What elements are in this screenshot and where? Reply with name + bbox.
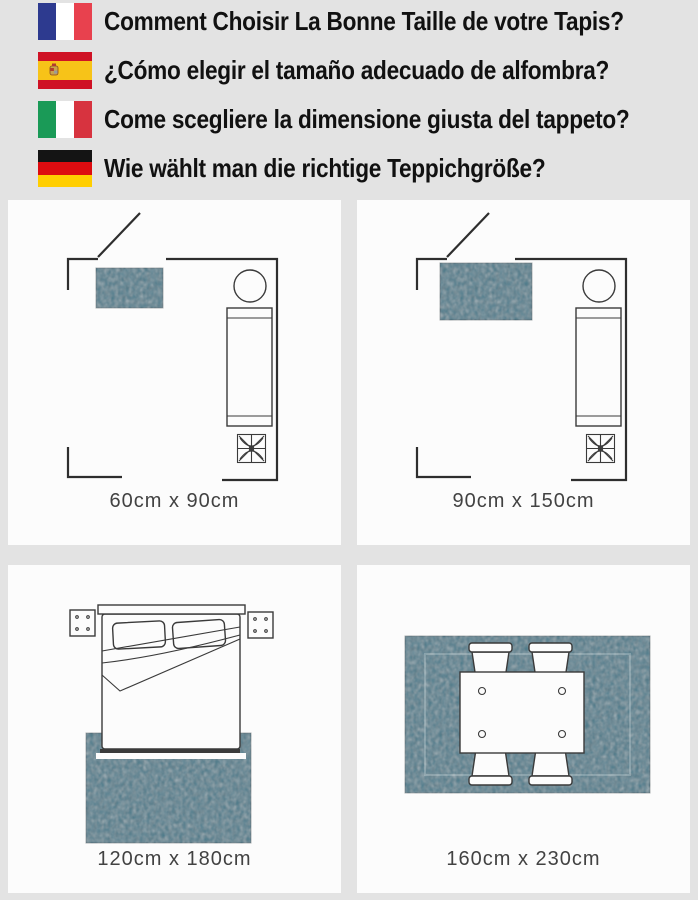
rug-size-label: 90cm x 150cm: [357, 490, 690, 513]
bedroom-floorplan: [8, 565, 341, 893]
side-table: [234, 270, 266, 302]
potted-plant: [587, 435, 615, 463]
header-row-spanish: ¿Cómo elegir el tamaño adecuado de alfom…: [38, 52, 698, 89]
bed: [96, 605, 246, 759]
header-row-french: Comment Choisir La Bonne Taille de votre…: [38, 3, 698, 40]
title-spanish: ¿Cómo elegir el tamaño adecuado de alfom…: [104, 55, 609, 86]
panel-rug-60x90: 60cm x 90cm: [8, 200, 341, 545]
title-italian: Come scegliere la dimensione giusta del …: [104, 104, 629, 135]
bed-footer-bar: [100, 749, 240, 753]
chair-bottom-left: [469, 749, 512, 785]
rug-size-label: 60cm x 90cm: [8, 490, 341, 513]
rug: [440, 263, 532, 320]
panel-rug-160x230: 160cm x 230cm: [357, 565, 690, 893]
dining-table: [460, 672, 584, 753]
rug-size-label: 120cm x 180cm: [8, 848, 341, 871]
title-french: Comment Choisir La Bonne Taille de votre…: [104, 6, 624, 37]
door-swing: [98, 213, 140, 257]
italy-flag-icon: [38, 101, 92, 138]
side-table: [583, 270, 615, 302]
panel-grid: 60cm x 90cm 90cm x 150cm: [0, 200, 698, 893]
title-header: Comment Choisir La Bonne Taille de votre…: [0, 0, 698, 200]
console-table: [576, 308, 621, 426]
rug-size-infographic: Comment Choisir La Bonne Taille de votre…: [0, 0, 698, 900]
potted-plant: [238, 435, 266, 463]
title-german: Wie wählt man die richtige Teppichgröße?: [104, 153, 545, 184]
dining-floorplan: [357, 565, 690, 893]
console-table: [227, 308, 272, 426]
spain-crest-icon: [49, 63, 59, 77]
spain-flag-icon: [38, 52, 92, 89]
headboard: [98, 605, 245, 614]
header-row-italian: Come scegliere la dimensione giusta del …: [38, 101, 698, 138]
chair-bottom-right: [529, 749, 572, 785]
bed-footer-gap: [96, 753, 246, 759]
nightstand-right: [248, 612, 273, 638]
panel-rug-120x180: 120cm x 180cm: [8, 565, 341, 893]
rug-size-label: 160cm x 230cm: [357, 848, 690, 871]
header-row-german: Wie wählt man die richtige Teppichgröße?: [38, 150, 698, 187]
nightstand-left: [70, 610, 95, 636]
germany-flag-icon: [38, 150, 92, 187]
door-swing: [447, 213, 489, 257]
panel-rug-90x150: 90cm x 150cm: [357, 200, 690, 545]
rug: [96, 268, 163, 308]
france-flag-icon: [38, 3, 92, 40]
